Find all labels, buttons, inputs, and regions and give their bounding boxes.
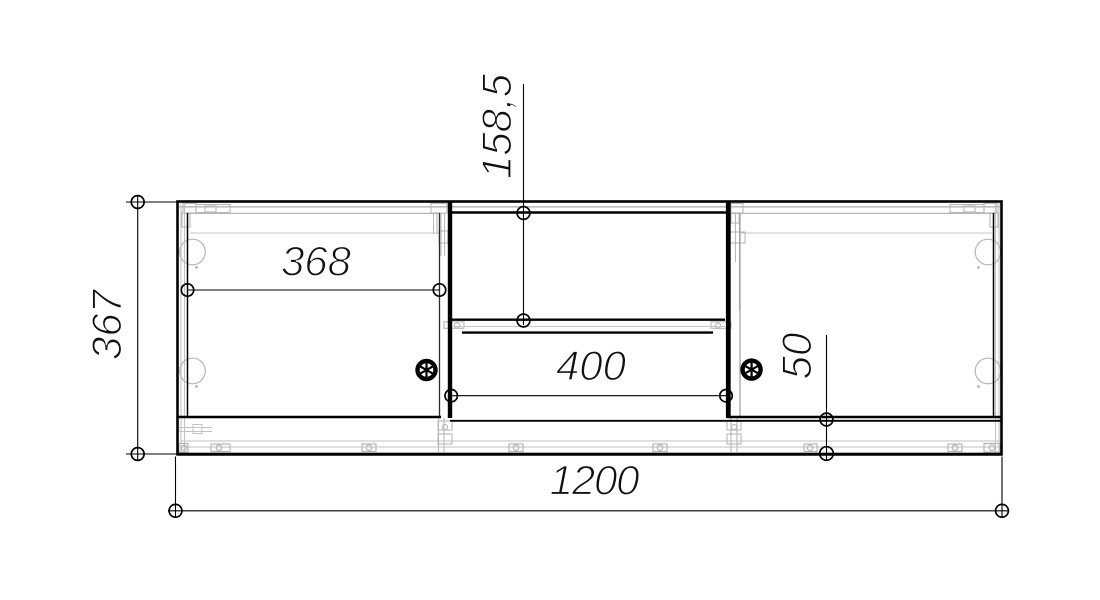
svg-text:367: 367 (83, 288, 130, 360)
svg-text:50: 50 (773, 332, 820, 379)
svg-text:368: 368 (281, 238, 352, 285)
svg-text:1200: 1200 (550, 457, 640, 504)
svg-text:158,5: 158,5 (473, 73, 520, 179)
svg-text:400: 400 (556, 342, 627, 389)
